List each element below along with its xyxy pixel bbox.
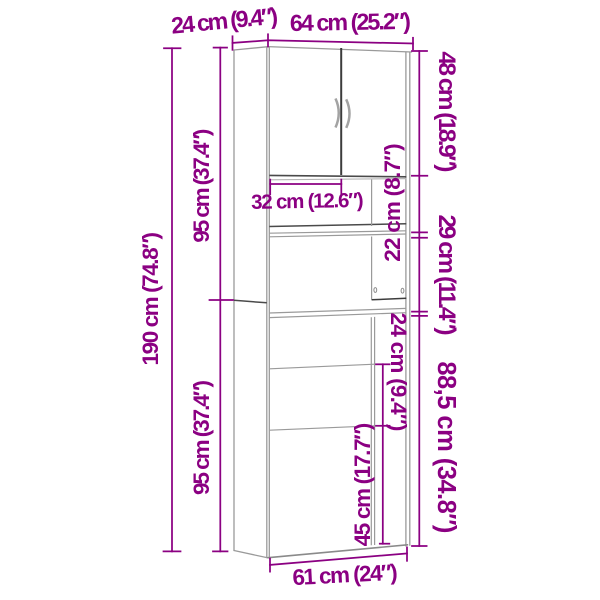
svg-text:88,5 cm (34.8″): 88,5 cm (34.8″) [432, 361, 460, 533]
svg-text:64 cm (25.2″): 64 cm (25.2″) [290, 8, 411, 36]
svg-text:45 cm (17.7″): 45 cm (17.7″) [350, 423, 375, 547]
svg-text:48 cm (18.9″): 48 cm (18.9″) [433, 51, 460, 172]
svg-text:95 cm (37.4″): 95 cm (37.4″) [189, 380, 214, 495]
svg-text:22 cm (8.7″): 22 cm (8.7″) [380, 143, 405, 261]
svg-text:32 cm (12.6″): 32 cm (12.6″) [251, 189, 364, 214]
svg-text:29 cm (11.4″): 29 cm (11.4″) [433, 215, 460, 336]
svg-text:190 cm (74.8″): 190 cm (74.8″) [138, 232, 163, 366]
svg-text:95 cm (37.4″): 95 cm (37.4″) [189, 129, 214, 243]
svg-text:24 cm (9.4″): 24 cm (9.4″) [386, 313, 411, 432]
